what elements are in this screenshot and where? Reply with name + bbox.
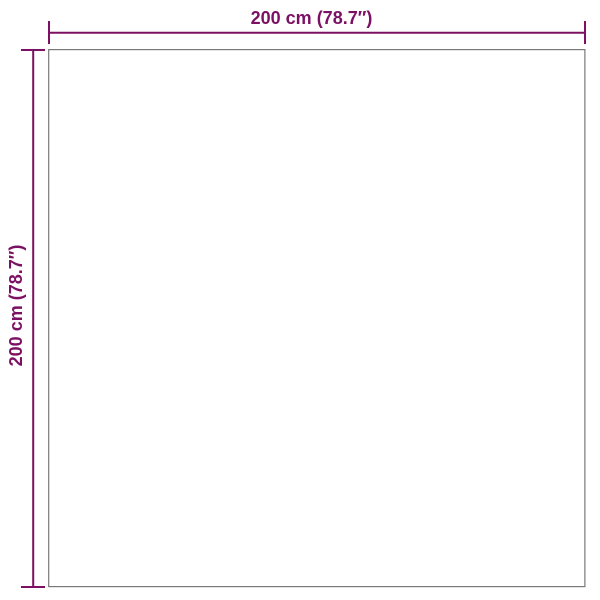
svg-text:200 cm (78.7″): 200 cm (78.7″) xyxy=(251,8,373,28)
svg-text:200 cm (78.7″): 200 cm (78.7″) xyxy=(6,245,26,367)
